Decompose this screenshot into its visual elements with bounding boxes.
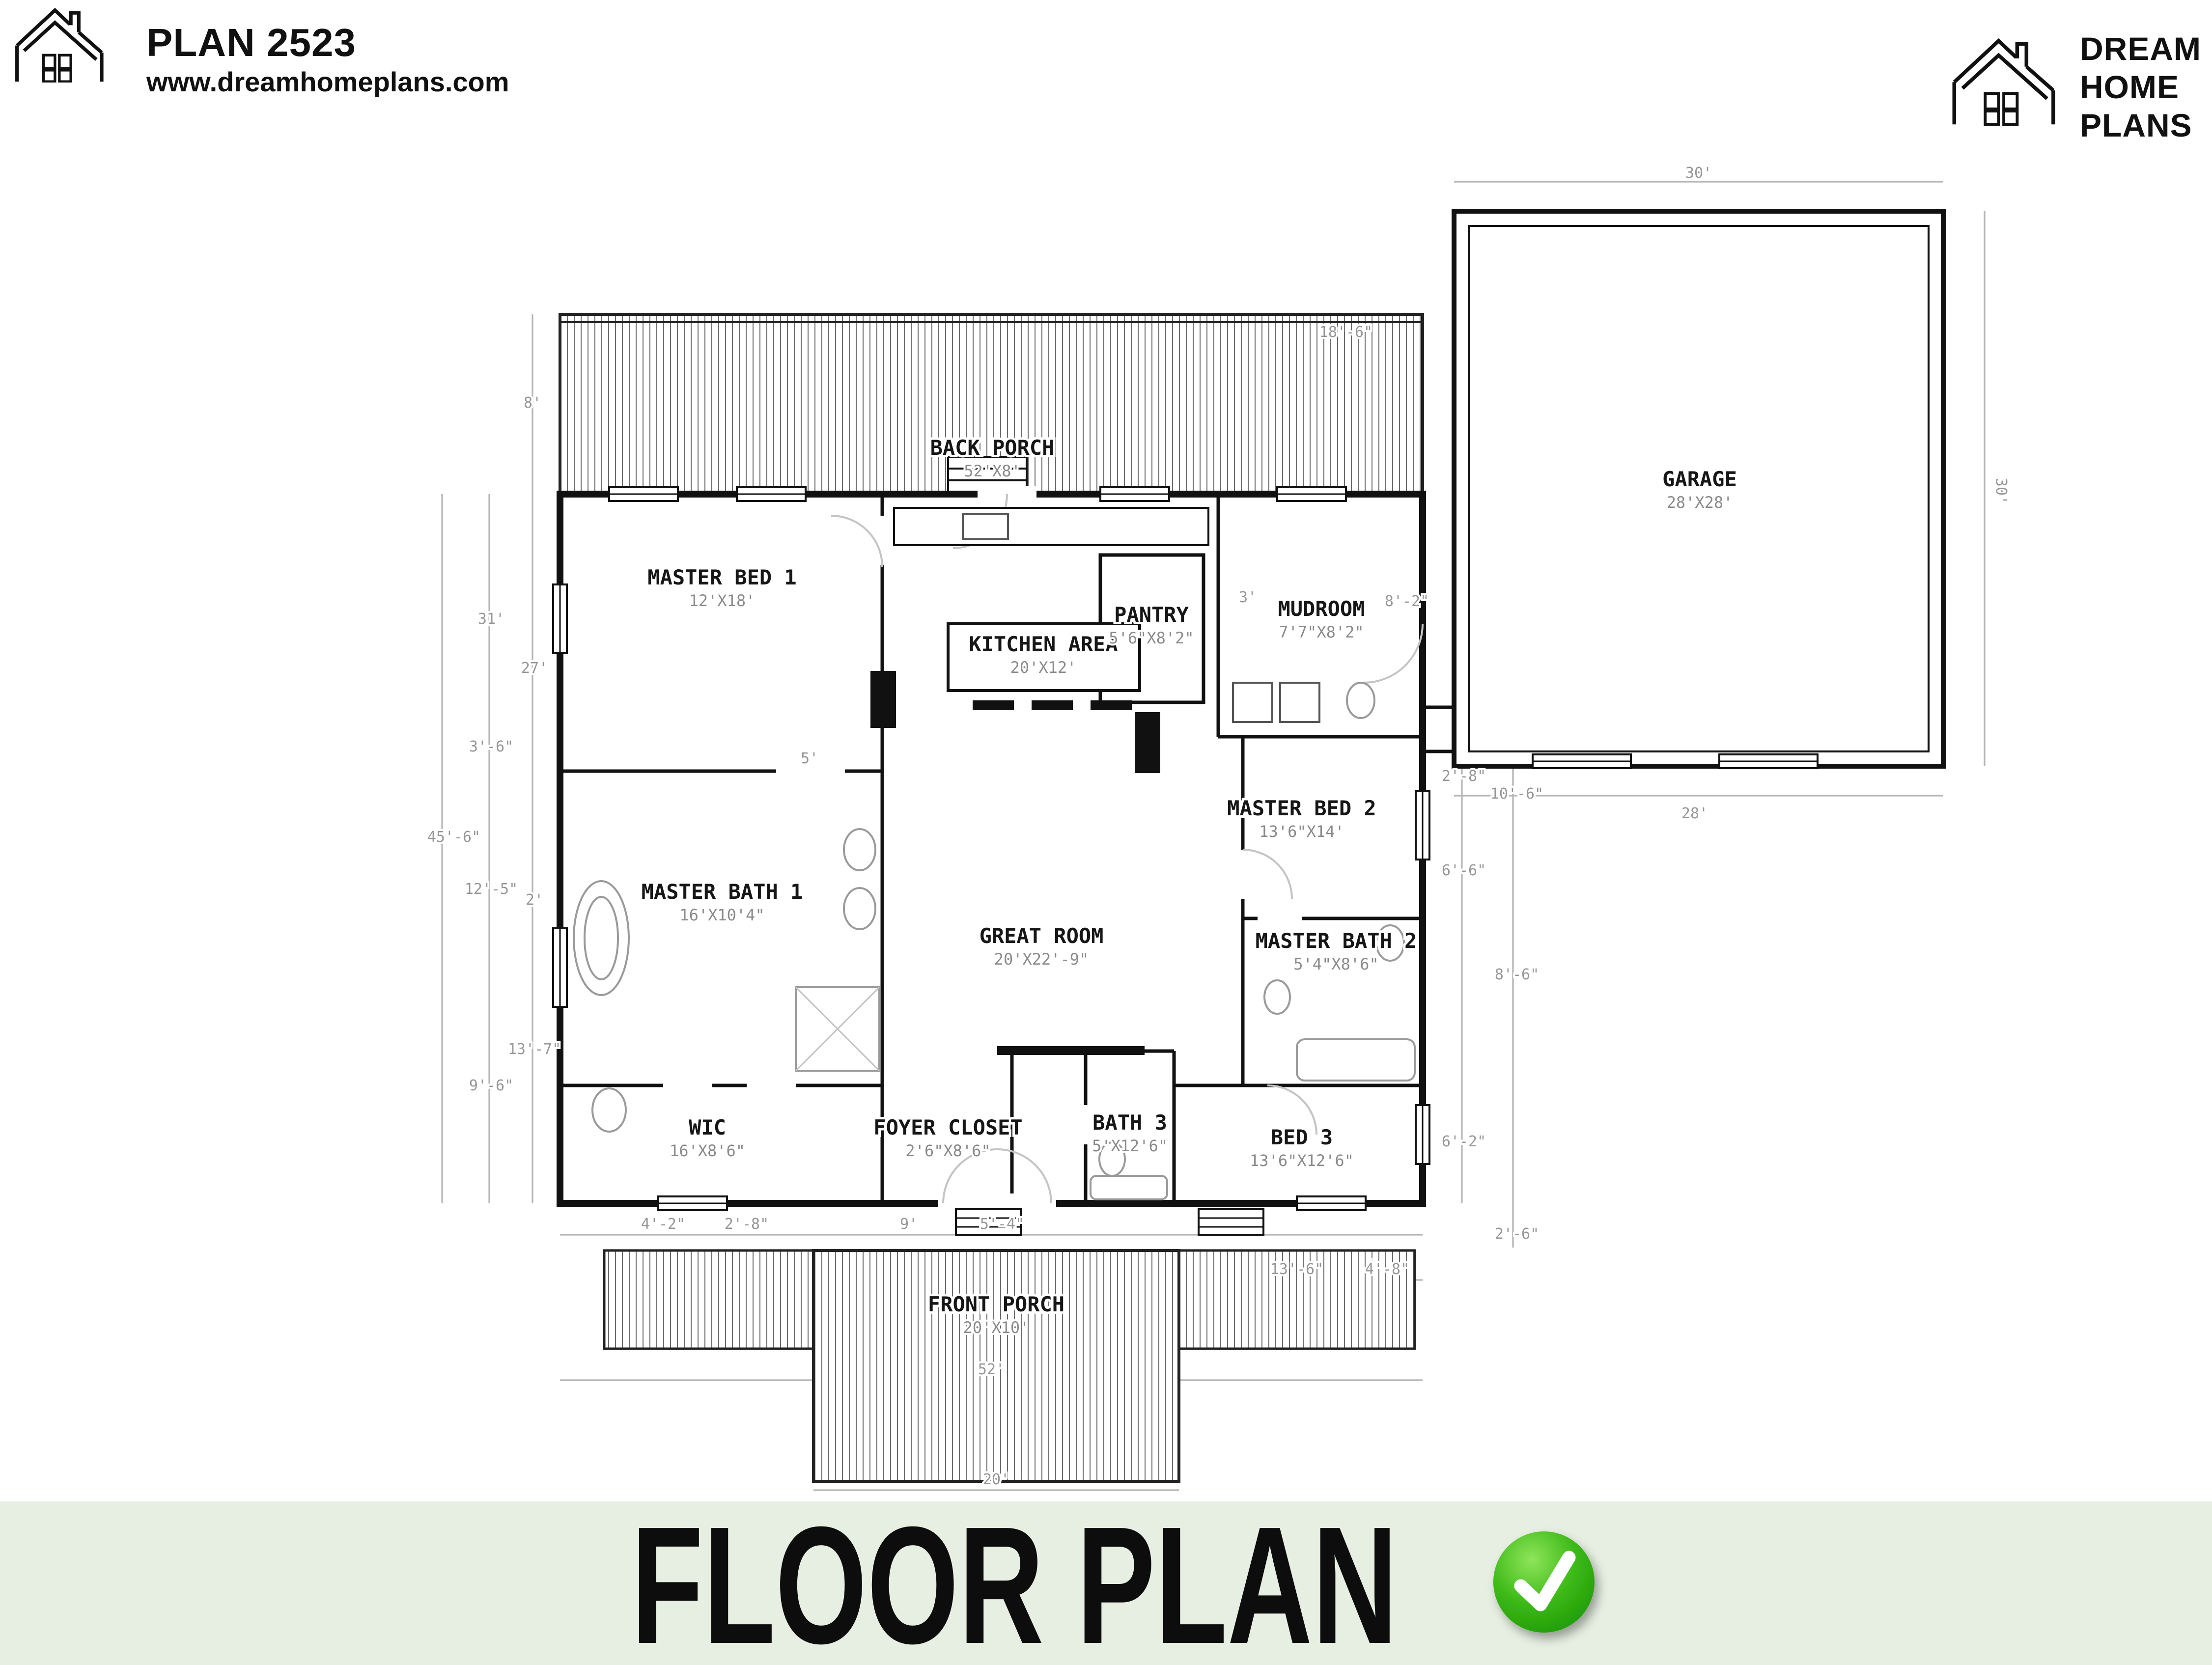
footer-banner: FLOOR PLAN [0, 1501, 2212, 1665]
dim-label: 30' [1992, 478, 2010, 504]
dim-label: 5'-4" [980, 1216, 1024, 1233]
front-porch [604, 1250, 1415, 1481]
room-size: 5'X12'6" [1092, 1137, 1168, 1155]
room-label: PANTRY [1114, 603, 1189, 627]
dim-label: 13'-7" [508, 1041, 561, 1058]
range [1135, 712, 1160, 773]
dim-label: 2'-8" [725, 1216, 769, 1233]
dim-label: 45'-6" [427, 829, 480, 846]
console [997, 1046, 1145, 1055]
dim-label: 10'-6" [1490, 785, 1543, 803]
kitchen-counter [894, 508, 1208, 545]
bathtub [1091, 1176, 1167, 1199]
dim-label: 2'-6" [1495, 1225, 1539, 1243]
room-great-room: GREAT ROOM 20'X22'-9" [980, 924, 1104, 969]
garage-window [1719, 754, 1818, 768]
room-label: GARAGE [1662, 467, 1737, 491]
washer [1233, 683, 1272, 722]
dim-label: 18'-6" [1319, 324, 1372, 341]
garage-window [1533, 754, 1631, 768]
stool [973, 700, 1014, 710]
room-label: GREAT ROOM [980, 924, 1104, 948]
dim-label: 13'-6" [1270, 1261, 1323, 1278]
dim-label: 12'-5" [465, 881, 518, 898]
room-size: 2'6"X8'6" [905, 1141, 990, 1160]
dim-label: 3' [1239, 589, 1257, 606]
stool [1091, 700, 1132, 710]
dim-label: 3'-6" [469, 738, 513, 755]
kitchen-sink [963, 514, 1008, 539]
room-label: MUDROOM [1278, 597, 1365, 621]
green-checkmark-icon [1493, 1531, 1595, 1633]
room-bath-3: BATH 3 5'X12'6" [1092, 1110, 1168, 1155]
house-logo-icon [1951, 6, 2075, 154]
page-title: PLAN 2523 [146, 22, 509, 64]
dryer [1280, 683, 1319, 722]
sink [844, 888, 875, 929]
room-size: 16'X8'6" [670, 1141, 745, 1160]
room-label: MASTER BATH 2 [1256, 929, 1417, 953]
room-label: FOYER CLOSET [873, 1115, 1022, 1139]
stool [1032, 700, 1073, 710]
dim-label: 9'-6" [469, 1077, 513, 1094]
header-brand-right: DREAM HOME PLANS [1951, 6, 2201, 154]
dim-label: 6'-2" [1442, 1133, 1486, 1150]
brand-word-plans: PLANS [2080, 106, 2201, 144]
room-mudroom: MUDROOM 7'7"X8'2" [1278, 597, 1365, 641]
banner-title: FLOOR PLAN [631, 1501, 1398, 1665]
room-size: 52'X8' [964, 462, 1021, 480]
website-url: www.dreamhomeplans.com [146, 64, 509, 100]
dim-label: 6'-6" [1442, 862, 1486, 879]
room-size: 28'X28' [1667, 493, 1733, 512]
dim-label: 20' [983, 1471, 1009, 1488]
house-logo-icon [9, 5, 126, 83]
page: PLAN 2523 www.dreamhomeplans.com DREAM H… [0, 0, 2212, 1665]
room-size: 20'X12' [1010, 658, 1077, 677]
room-label: MASTER BATH 1 [642, 880, 803, 904]
fireplace [870, 671, 896, 728]
bathtub [1297, 1039, 1415, 1081]
header-brand-left: PLAN 2523 www.dreamhomeplans.com [9, 5, 509, 100]
room-size: 20'X10' [963, 1318, 1030, 1337]
brand-word-dream: DREAM [2080, 29, 2201, 68]
dim-label: 4'-2" [641, 1216, 685, 1233]
room-size: 12'X18' [689, 591, 756, 610]
dim-label: 4'-8" [1365, 1261, 1409, 1278]
dim-label: 2'-8" [1442, 768, 1486, 785]
room-label: FRONT PORCH [928, 1292, 1064, 1316]
floor-plan-drawing: MASTER BED 1 12'X18' KITCHEN AREA 20'X12… [413, 162, 2014, 1503]
room-label: KITCHEN AREA [969, 632, 1118, 656]
dim-label: 5' [801, 750, 818, 767]
room-label: MASTER BED 2 [1227, 796, 1376, 820]
sink [844, 829, 875, 870]
room-size: 7'7"X8'2" [1279, 623, 1364, 641]
room-label: WIC [689, 1115, 726, 1139]
banner-graphics: FLOOR PLAN [0, 1501, 2212, 1665]
room-pantry: PANTRY 5'6"X8'2" [1109, 603, 1194, 647]
dim-label: 8' [524, 394, 541, 412]
dim-label: 8'-6" [1495, 966, 1539, 983]
room-label: MASTER BED 1 [647, 565, 796, 589]
dim-label: 30' [1685, 165, 1712, 182]
room-size: 5'6"X8'2" [1109, 629, 1194, 647]
front-steps [1199, 1209, 1263, 1235]
room-size: 16'X10'4" [679, 906, 764, 924]
brand-word-home: HOME [2080, 68, 2201, 106]
dim-label: 31' [478, 610, 504, 628]
room-size: 20'X22'-9" [994, 950, 1089, 969]
toilet [592, 1088, 626, 1132]
dim-label: 8'-2" [1385, 593, 1429, 610]
room-label: BACK PORCH [930, 436, 1055, 460]
dim-label: 9' [900, 1216, 918, 1233]
room-size: 5'4"X8'6" [1293, 955, 1378, 973]
room-size: 13'6"X12'6" [1250, 1151, 1354, 1170]
dim-label: 52' [978, 1361, 1005, 1378]
room-garage: GARAGE 28'X28' [1662, 467, 1737, 512]
dim-label: 28' [1681, 805, 1708, 822]
toilet [1264, 980, 1290, 1014]
room-label: BED 3 [1271, 1125, 1333, 1149]
dim-label: 2' [526, 891, 543, 909]
dim-label: 27' [521, 660, 548, 677]
room-label: BATH 3 [1092, 1110, 1167, 1135]
room-size: 13'6"X14' [1259, 822, 1344, 841]
toilet [1347, 683, 1374, 718]
